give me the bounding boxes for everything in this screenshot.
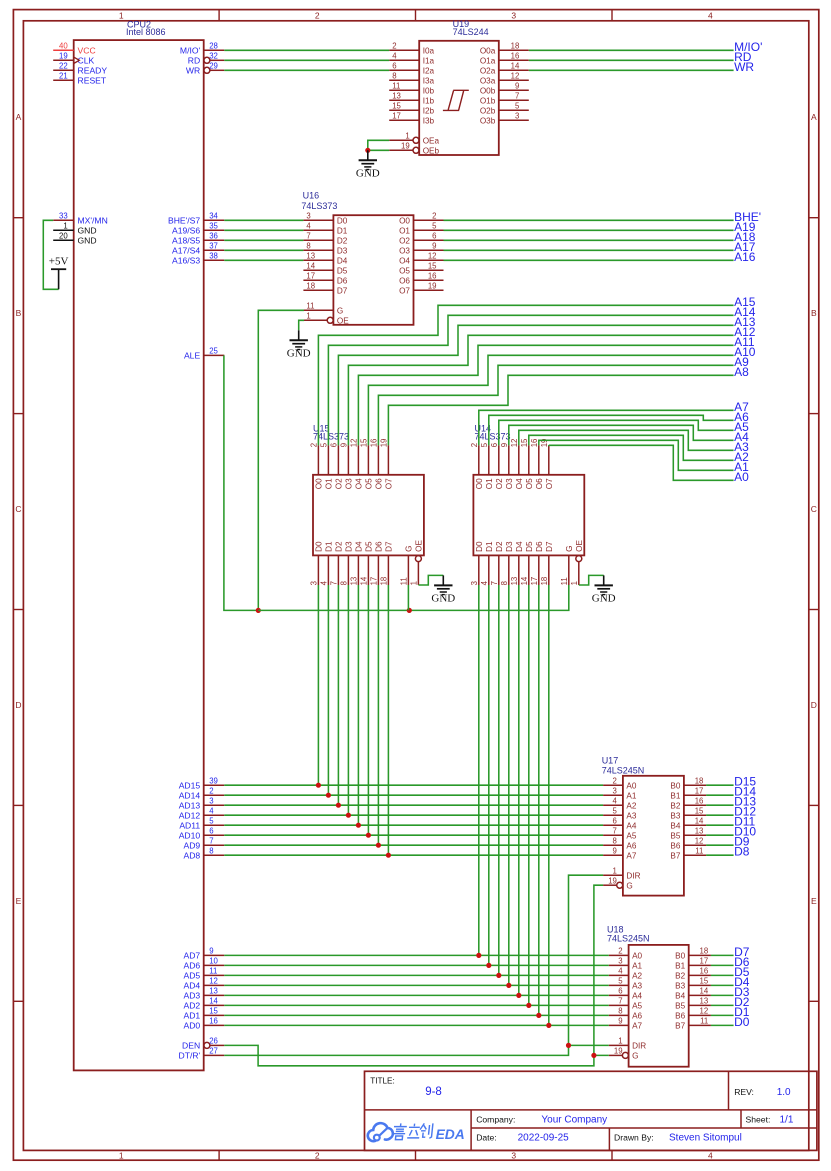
svg-text:I2b: I2b — [423, 106, 435, 115]
svg-text:40: 40 — [59, 42, 68, 51]
svg-text:U16: U16 — [303, 191, 320, 201]
svg-text:2: 2 — [315, 10, 320, 20]
svg-text:B3: B3 — [670, 811, 680, 820]
svg-text:8: 8 — [339, 581, 348, 585]
svg-text:E: E — [811, 896, 817, 906]
svg-text:MX'/MN: MX'/MN — [78, 215, 108, 225]
svg-text:35: 35 — [209, 222, 218, 231]
svg-text:A16/S3: A16/S3 — [172, 255, 200, 265]
svg-text:A3: A3 — [632, 982, 642, 991]
svg-text:13: 13 — [510, 577, 519, 586]
svg-text:VCC: VCC — [78, 45, 96, 55]
svg-text:2022-09-25: 2022-09-25 — [518, 1133, 570, 1144]
svg-text:14: 14 — [520, 576, 529, 585]
svg-text:6: 6 — [209, 827, 213, 836]
svg-text:14: 14 — [511, 62, 520, 71]
svg-text:74LS245N: 74LS245N — [602, 766, 645, 776]
svg-text:O0: O0 — [475, 478, 484, 489]
svg-text:GND: GND — [431, 593, 455, 605]
svg-text:2: 2 — [470, 443, 479, 447]
svg-text:REV:: REV: — [734, 1087, 754, 1097]
svg-text:22: 22 — [59, 62, 68, 71]
svg-text:9-8: 9-8 — [425, 1086, 442, 1098]
svg-text:11: 11 — [306, 302, 314, 311]
svg-text:14: 14 — [209, 997, 218, 1006]
svg-text:RD: RD — [188, 55, 200, 65]
svg-text:13: 13 — [306, 252, 315, 261]
svg-text:2: 2 — [432, 212, 436, 221]
svg-text:ALE: ALE — [184, 351, 201, 361]
svg-text:7: 7 — [306, 232, 310, 241]
svg-text:AD0: AD0 — [183, 1021, 200, 1031]
svg-text:GND: GND — [78, 235, 97, 245]
svg-text:D3: D3 — [337, 246, 348, 255]
svg-text:O3b: O3b — [480, 116, 496, 125]
svg-text:19: 19 — [401, 142, 410, 151]
svg-text:O5: O5 — [399, 266, 410, 275]
svg-text:9: 9 — [613, 847, 617, 856]
svg-text:A6: A6 — [626, 841, 636, 850]
svg-text:11: 11 — [560, 577, 569, 585]
svg-text:D1: D1 — [324, 541, 333, 552]
svg-text:1: 1 — [618, 1037, 622, 1046]
svg-text:B4: B4 — [675, 992, 685, 1001]
svg-text:15: 15 — [700, 977, 709, 986]
svg-text:3: 3 — [515, 112, 519, 121]
svg-text:Intel 8086: Intel 8086 — [126, 27, 166, 37]
svg-text:G: G — [565, 546, 574, 552]
svg-text:D8: D8 — [734, 845, 750, 859]
svg-text:74LS373: 74LS373 — [301, 201, 337, 211]
svg-text:I2a: I2a — [423, 66, 435, 75]
svg-text:WR: WR — [186, 65, 200, 75]
svg-text:19: 19 — [59, 52, 68, 61]
svg-text:9: 9 — [339, 443, 348, 447]
svg-text:5: 5 — [613, 807, 618, 816]
svg-text:29: 29 — [209, 62, 218, 71]
svg-text:D2: D2 — [334, 541, 343, 552]
svg-text:AD14: AD14 — [179, 790, 201, 800]
svg-text:G: G — [632, 1052, 638, 1061]
svg-text:D4: D4 — [515, 541, 524, 552]
svg-text:5: 5 — [319, 442, 328, 447]
svg-text:13: 13 — [695, 827, 704, 836]
svg-text:D3: D3 — [505, 541, 514, 552]
svg-text:12: 12 — [695, 837, 704, 846]
svg-text:O1: O1 — [485, 478, 494, 489]
svg-text:O7: O7 — [399, 286, 410, 295]
svg-text:32: 32 — [209, 52, 218, 61]
svg-text:AD15: AD15 — [179, 780, 201, 790]
svg-text:13: 13 — [700, 997, 709, 1006]
svg-text:A0: A0 — [626, 781, 636, 790]
svg-text:12: 12 — [349, 439, 358, 448]
svg-text:A19/S6: A19/S6 — [172, 225, 200, 235]
svg-text:12: 12 — [510, 439, 519, 448]
svg-text:4: 4 — [392, 52, 397, 61]
svg-text:D1: D1 — [485, 541, 494, 552]
svg-text:2: 2 — [618, 947, 622, 956]
svg-text:17: 17 — [306, 272, 315, 281]
svg-text:8: 8 — [613, 837, 617, 846]
svg-text:B: B — [16, 308, 22, 318]
svg-text:D: D — [15, 700, 21, 710]
svg-text:O5: O5 — [525, 478, 534, 489]
svg-text:A18/S5: A18/S5 — [172, 235, 200, 245]
svg-text:5: 5 — [209, 817, 214, 826]
svg-text:O1: O1 — [399, 226, 410, 235]
svg-text:19: 19 — [608, 877, 617, 886]
svg-text:D: D — [811, 700, 817, 710]
svg-text:3: 3 — [511, 10, 516, 20]
svg-text:15: 15 — [392, 102, 401, 111]
svg-text:12: 12 — [511, 72, 520, 81]
svg-text:RESET: RESET — [78, 75, 107, 85]
svg-text:21: 21 — [59, 72, 68, 81]
svg-text:O0: O0 — [314, 478, 323, 489]
svg-text:9: 9 — [500, 443, 509, 447]
svg-text:13: 13 — [392, 92, 401, 101]
svg-text:D0: D0 — [734, 1015, 750, 1029]
svg-text:4: 4 — [306, 222, 311, 231]
svg-text:AD1: AD1 — [183, 1011, 200, 1021]
svg-text:9: 9 — [515, 82, 519, 91]
svg-text:B6: B6 — [675, 1012, 685, 1021]
svg-text:1: 1 — [613, 867, 617, 876]
svg-text:I1a: I1a — [423, 56, 435, 65]
svg-text:5: 5 — [432, 222, 437, 231]
svg-text:O7: O7 — [545, 478, 554, 489]
svg-text:A16: A16 — [734, 250, 756, 264]
svg-text:2: 2 — [613, 777, 617, 786]
svg-text:U17: U17 — [602, 756, 619, 766]
svg-text:15: 15 — [359, 438, 368, 447]
svg-text:10: 10 — [209, 957, 218, 966]
svg-text:1/1: 1/1 — [780, 1115, 794, 1126]
svg-text:OEa: OEa — [423, 136, 440, 145]
svg-text:AD10: AD10 — [179, 830, 201, 840]
svg-text:GND: GND — [592, 593, 616, 605]
svg-text:I3a: I3a — [423, 76, 435, 85]
svg-text:D6: D6 — [535, 541, 544, 552]
svg-text:A0: A0 — [632, 952, 642, 961]
svg-text:O2b: O2b — [480, 106, 496, 115]
svg-text:A: A — [811, 112, 817, 122]
svg-text:6: 6 — [613, 817, 617, 826]
svg-text:11: 11 — [209, 967, 217, 976]
svg-text:B2: B2 — [670, 801, 680, 810]
svg-text:9: 9 — [618, 1017, 622, 1026]
svg-text:A6: A6 — [632, 1012, 642, 1021]
svg-text:17: 17 — [392, 112, 401, 121]
svg-text:16: 16 — [695, 797, 704, 806]
svg-text:8: 8 — [209, 847, 213, 856]
svg-text:33: 33 — [59, 212, 68, 221]
svg-text:A1: A1 — [632, 962, 642, 971]
svg-text:1: 1 — [405, 132, 409, 141]
svg-text:16: 16 — [209, 1017, 218, 1026]
svg-text:A7: A7 — [632, 1022, 642, 1031]
svg-text:O0a: O0a — [480, 46, 496, 55]
svg-text:12: 12 — [209, 977, 218, 986]
svg-text:OE: OE — [575, 540, 584, 552]
svg-text:18: 18 — [540, 577, 549, 586]
svg-text:GND: GND — [78, 225, 97, 235]
svg-text:O1a: O1a — [480, 56, 496, 65]
svg-text:A1: A1 — [626, 791, 636, 800]
svg-text:4: 4 — [209, 807, 214, 816]
svg-text:74LS373: 74LS373 — [475, 432, 511, 442]
svg-text:A4: A4 — [626, 821, 636, 830]
svg-text:B1: B1 — [670, 791, 680, 800]
svg-text:9: 9 — [432, 242, 436, 251]
svg-text:D3: D3 — [344, 541, 353, 552]
svg-text:AD9: AD9 — [183, 840, 200, 850]
svg-text:AD6: AD6 — [183, 961, 200, 971]
svg-text:WR: WR — [734, 60, 754, 74]
svg-text:3: 3 — [306, 212, 310, 221]
svg-text:C: C — [811, 504, 817, 514]
svg-text:I0b: I0b — [423, 86, 435, 95]
svg-text:2: 2 — [309, 443, 318, 447]
svg-text:5: 5 — [618, 977, 623, 986]
svg-text:3: 3 — [511, 1151, 516, 1161]
svg-text:AD8: AD8 — [183, 850, 200, 860]
svg-text:A7: A7 — [626, 851, 636, 860]
svg-text:I0a: I0a — [423, 46, 435, 55]
svg-text:7: 7 — [613, 827, 617, 836]
svg-text:3: 3 — [209, 797, 213, 806]
svg-text:14: 14 — [359, 576, 368, 585]
svg-text:O4: O4 — [399, 256, 410, 265]
svg-text:A5: A5 — [632, 1002, 642, 1011]
svg-text:D4: D4 — [337, 256, 348, 265]
svg-text:4: 4 — [708, 1151, 713, 1161]
svg-text:A2: A2 — [626, 801, 636, 810]
svg-text:B5: B5 — [675, 1002, 685, 1011]
svg-text:9: 9 — [209, 947, 213, 956]
svg-text:D7: D7 — [384, 541, 393, 552]
svg-text:6: 6 — [392, 62, 396, 71]
svg-text:6: 6 — [490, 443, 499, 447]
svg-text:B7: B7 — [670, 851, 680, 860]
svg-text:O2: O2 — [495, 478, 504, 489]
svg-text:7: 7 — [490, 581, 499, 585]
svg-text:16: 16 — [369, 439, 378, 448]
svg-text:D2: D2 — [337, 236, 348, 245]
svg-text:17: 17 — [530, 577, 539, 586]
svg-text:39: 39 — [209, 777, 218, 786]
svg-text:EDA: EDA — [436, 1127, 465, 1142]
svg-text:B: B — [811, 308, 817, 318]
svg-text:D5: D5 — [525, 541, 534, 552]
svg-text:17: 17 — [700, 957, 709, 966]
svg-text:4: 4 — [480, 580, 489, 585]
svg-text:11: 11 — [700, 1017, 708, 1026]
svg-text:B0: B0 — [675, 952, 685, 961]
svg-text:AD12: AD12 — [179, 810, 201, 820]
svg-text:AD5: AD5 — [183, 971, 200, 981]
svg-text:O2: O2 — [334, 478, 343, 489]
svg-text:34: 34 — [209, 212, 218, 221]
svg-text:GND: GND — [287, 348, 311, 360]
svg-text:4: 4 — [613, 797, 618, 806]
svg-text:M/IO': M/IO' — [180, 45, 201, 55]
svg-text:25: 25 — [209, 347, 218, 356]
svg-text:E: E — [16, 896, 22, 906]
svg-text:74LS245N: 74LS245N — [607, 934, 650, 944]
svg-text:OEb: OEb — [423, 146, 440, 155]
svg-text:D0: D0 — [475, 541, 484, 552]
svg-text:27: 27 — [209, 1047, 218, 1056]
svg-text:12: 12 — [700, 1007, 709, 1016]
svg-text:O3: O3 — [344, 478, 353, 489]
svg-text:15: 15 — [428, 262, 437, 271]
svg-text:14: 14 — [306, 262, 315, 271]
svg-text:14: 14 — [700, 987, 709, 996]
svg-text:B6: B6 — [670, 841, 680, 850]
svg-text:D0: D0 — [314, 541, 323, 552]
svg-text:A: A — [16, 112, 22, 122]
svg-text:TITLE:: TITLE: — [370, 1077, 395, 1086]
svg-text:D1: D1 — [337, 226, 348, 235]
svg-text:AD7: AD7 — [183, 951, 200, 961]
svg-text:AD11: AD11 — [179, 820, 200, 830]
svg-text:O0: O0 — [399, 216, 410, 225]
svg-text:O5: O5 — [364, 478, 373, 489]
svg-text:D4: D4 — [354, 541, 363, 552]
svg-text:20: 20 — [59, 232, 68, 241]
svg-text:6: 6 — [432, 232, 436, 241]
svg-text:DIR: DIR — [626, 871, 640, 880]
svg-text:DT/R': DT/R' — [178, 1051, 200, 1061]
svg-text:O7: O7 — [384, 478, 393, 489]
svg-text:15: 15 — [520, 438, 529, 447]
svg-text:6: 6 — [618, 987, 622, 996]
svg-text:AD3: AD3 — [183, 991, 200, 1001]
svg-text:Company:: Company: — [476, 1114, 515, 1124]
svg-text:2: 2 — [209, 787, 213, 796]
svg-text:C: C — [15, 504, 21, 514]
svg-text:DIR: DIR — [632, 1042, 646, 1051]
svg-text:26: 26 — [209, 1037, 218, 1046]
svg-text:D6: D6 — [374, 541, 383, 552]
svg-text:11: 11 — [695, 847, 703, 856]
svg-text:16: 16 — [428, 272, 437, 281]
svg-text:7: 7 — [209, 837, 213, 846]
svg-text:17: 17 — [369, 577, 378, 586]
svg-text:11: 11 — [392, 82, 400, 91]
svg-text:7: 7 — [329, 581, 338, 585]
svg-text:18: 18 — [511, 42, 520, 51]
svg-text:D0: D0 — [337, 216, 348, 225]
svg-text:D5: D5 — [337, 266, 348, 275]
svg-text:18: 18 — [306, 282, 315, 291]
svg-text:7: 7 — [515, 92, 519, 101]
svg-text:2: 2 — [392, 42, 396, 51]
svg-text:3: 3 — [309, 581, 318, 585]
svg-text:O2: O2 — [399, 236, 410, 245]
svg-text:16: 16 — [700, 967, 709, 976]
svg-text:1: 1 — [409, 581, 418, 585]
svg-text:1: 1 — [119, 1151, 124, 1161]
svg-text:B3: B3 — [675, 982, 685, 991]
svg-text:G: G — [404, 546, 413, 552]
svg-text:Sheet:: Sheet: — [746, 1114, 771, 1124]
svg-text:17: 17 — [695, 787, 704, 796]
svg-text:Drawn By:: Drawn By: — [614, 1133, 654, 1143]
svg-text:38: 38 — [209, 252, 218, 261]
svg-text:14: 14 — [695, 817, 704, 826]
svg-text:4: 4 — [708, 10, 713, 20]
svg-text:B0: B0 — [670, 781, 680, 790]
svg-text:12: 12 — [428, 252, 437, 261]
svg-text:G: G — [626, 881, 632, 890]
svg-text:18: 18 — [695, 777, 704, 786]
svg-text:O4: O4 — [354, 478, 363, 489]
svg-text:D5: D5 — [364, 541, 373, 552]
svg-text:1: 1 — [63, 222, 67, 231]
svg-text:AD2: AD2 — [183, 1001, 200, 1011]
svg-text:8: 8 — [500, 581, 509, 585]
svg-text:3: 3 — [613, 787, 617, 796]
svg-text:B2: B2 — [675, 972, 685, 981]
svg-text:B1: B1 — [675, 962, 685, 971]
svg-text:19: 19 — [428, 282, 437, 291]
svg-text:19: 19 — [379, 439, 388, 448]
svg-text:A4: A4 — [632, 992, 642, 1001]
svg-text:4: 4 — [618, 967, 623, 976]
svg-text:3: 3 — [618, 957, 622, 966]
svg-text:1: 1 — [570, 581, 579, 585]
svg-text:BHE'/S7: BHE'/S7 — [168, 215, 200, 225]
svg-text:Steven Sitompul: Steven Sitompul — [669, 1133, 742, 1144]
svg-text:A5: A5 — [626, 831, 636, 840]
svg-text:+5V: +5V — [49, 256, 69, 268]
svg-text:O6: O6 — [374, 478, 383, 489]
svg-text:8: 8 — [618, 1007, 622, 1016]
svg-text:37: 37 — [209, 242, 218, 251]
svg-text:OE: OE — [414, 540, 423, 552]
svg-text:D7: D7 — [545, 541, 554, 552]
svg-text:8: 8 — [306, 242, 310, 251]
svg-text:A3: A3 — [626, 811, 636, 820]
svg-text:AD13: AD13 — [179, 800, 201, 810]
svg-text:16: 16 — [530, 439, 539, 448]
svg-text:G: G — [337, 306, 343, 315]
svg-text:5: 5 — [480, 442, 489, 447]
svg-text:OE: OE — [337, 316, 349, 325]
svg-text:DEN: DEN — [182, 1041, 200, 1051]
svg-text:5: 5 — [515, 102, 520, 111]
svg-text:D7: D7 — [337, 286, 348, 295]
svg-text:A8: A8 — [734, 365, 749, 379]
svg-text:B5: B5 — [670, 831, 680, 840]
svg-text:4: 4 — [319, 580, 328, 585]
svg-text:O0b: O0b — [480, 86, 496, 95]
svg-text:O2a: O2a — [480, 66, 496, 75]
svg-text:19: 19 — [614, 1047, 623, 1056]
svg-text:O4: O4 — [515, 478, 524, 489]
svg-text:1: 1 — [306, 312, 310, 321]
svg-text:I3b: I3b — [423, 116, 435, 125]
svg-text:A17/S4: A17/S4 — [172, 245, 200, 255]
svg-text:36: 36 — [209, 232, 218, 241]
svg-text:B7: B7 — [675, 1022, 685, 1031]
svg-text:8: 8 — [392, 72, 396, 81]
svg-text:3: 3 — [470, 581, 479, 585]
svg-text:O3a: O3a — [480, 76, 496, 85]
